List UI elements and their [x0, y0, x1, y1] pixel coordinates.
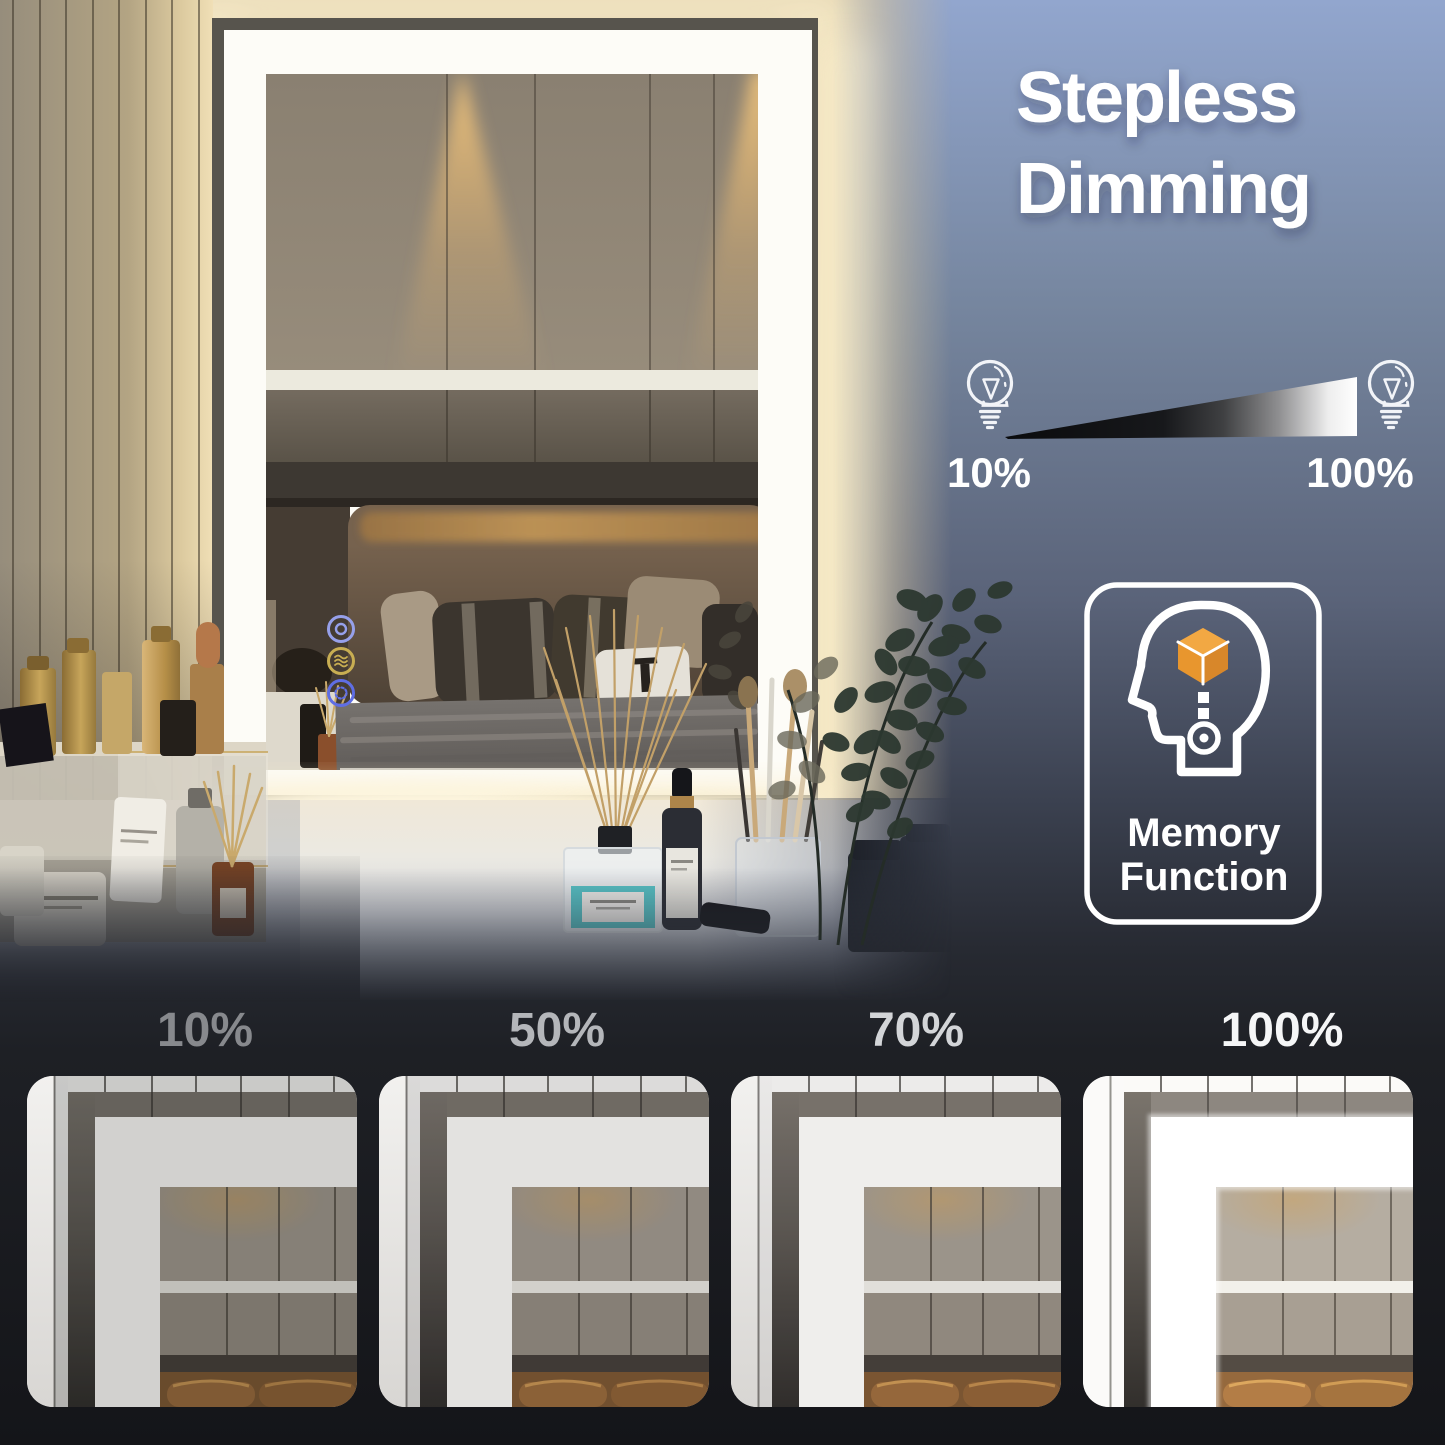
svg-text:Stepless: Stepless: [1016, 58, 1296, 138]
svg-text:Dimming: Dimming: [1016, 149, 1310, 229]
svg-text:10%: 10%: [157, 1004, 253, 1057]
svg-text:10%: 10%: [947, 449, 1031, 496]
svg-text:100%: 100%: [1221, 1004, 1344, 1057]
svg-text:50%: 50%: [509, 1004, 605, 1057]
svg-text:Function: Function: [1120, 855, 1289, 899]
svg-text:100%: 100%: [1306, 449, 1413, 496]
svg-text:70%: 70%: [868, 1004, 964, 1057]
svg-text:Memory: Memory: [1127, 811, 1281, 855]
